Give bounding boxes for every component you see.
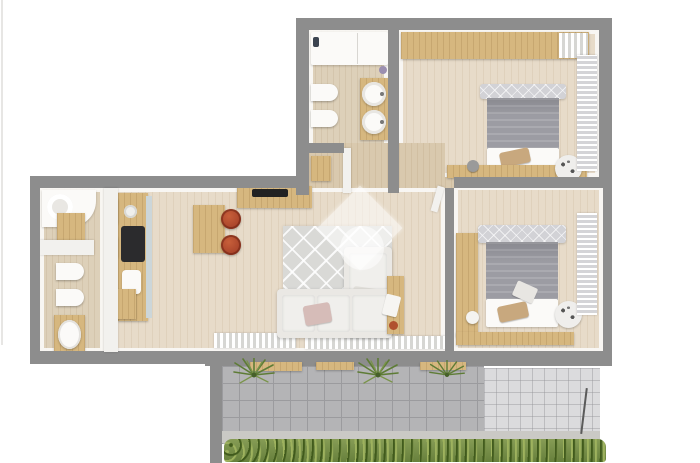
palm-plant-icon [356,358,400,390]
bed-blanket [487,98,559,149]
image-edge-line [1,0,3,345]
vase-icon [466,311,479,324]
wall-segment [599,18,612,186]
toilet-icon [311,84,338,101]
floor-plan-render [0,0,700,463]
bench-desk [456,332,574,345]
door-leaf [343,148,351,193]
bidet-icon [56,289,84,306]
wall-segment [603,186,612,366]
louver-curtain [577,213,597,315]
faucet-icon [380,120,384,124]
bar-stool [221,209,241,229]
plant-decor-icon [379,66,387,74]
curtains [577,55,597,171]
hedge [224,439,606,462]
decor-ball-icon [467,160,479,172]
tv-icon [252,189,288,197]
wall-segment [309,143,344,153]
wall-segment [296,18,309,195]
shower-glass-divider [357,33,358,64]
wall-segment [445,188,454,356]
palm-plant-icon [232,358,276,390]
vanity-sink-icon [58,320,81,349]
wall-segment [30,176,40,364]
palm-plant-icon [428,360,466,388]
wall-segment [30,176,296,188]
wall-segment [210,351,222,463]
cooktop-icon [121,226,145,262]
bed-headboard [478,225,566,243]
wall-shelf [40,240,94,255]
bedroom-2-door-opening [445,177,454,188]
hall-cabinet [311,156,331,181]
faucet-icon [380,92,384,96]
bidet-icon [311,110,338,127]
decor-pot-icon [389,321,398,330]
wall-segment [296,18,612,30]
watermark-circle [340,226,384,270]
counter-edge [146,196,152,318]
bath-cabinet [57,213,85,240]
planter-bench [316,362,354,370]
small-appliance-icon [124,205,137,218]
wall-segment [30,351,222,364]
shower-head-icon [313,37,319,47]
wall-segment [388,30,399,193]
bed-headboard [480,84,566,99]
shower-tray [311,32,388,65]
interior-wall [104,188,118,352]
wall-segment [454,177,612,188]
toilet-icon [56,263,84,280]
bar-stool [221,235,241,255]
